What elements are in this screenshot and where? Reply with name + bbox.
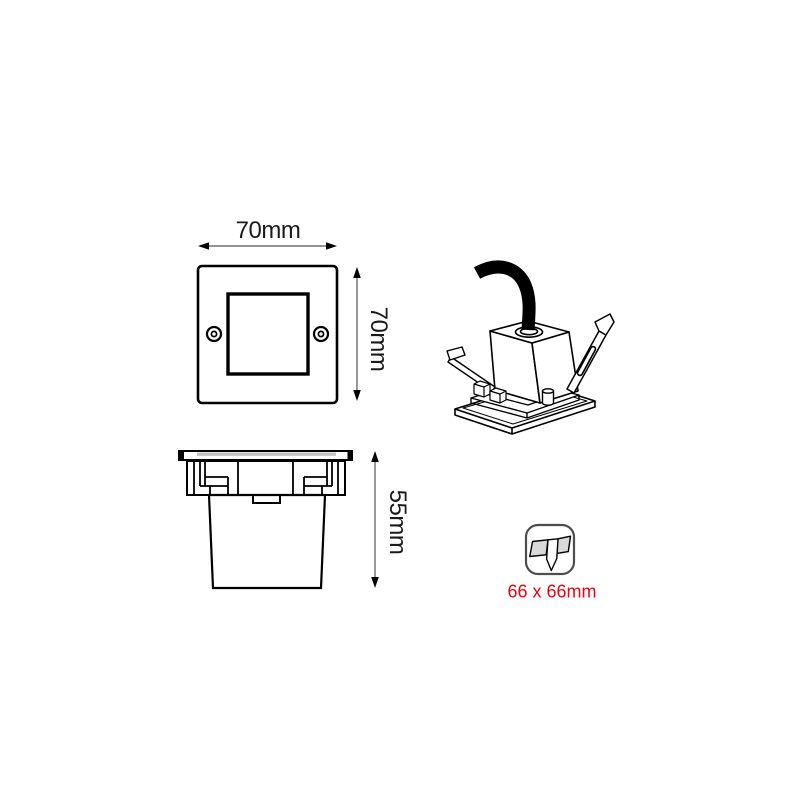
depth-dimension-arrow <box>371 451 379 588</box>
side-view-drawing <box>179 451 352 588</box>
front-knob <box>543 389 554 405</box>
lens-window <box>228 294 308 374</box>
cutout-hole-icon <box>526 525 574 574</box>
recessed-body <box>209 495 325 588</box>
height-dimension-arrow <box>353 267 361 401</box>
front-view-drawing <box>198 266 337 403</box>
line-art-layer <box>0 0 800 800</box>
cutout-surface-left <box>530 540 548 557</box>
power-cable <box>477 267 529 330</box>
spring-clip-right <box>567 314 614 393</box>
front-width-dimension-label: 70mm <box>236 217 301 245</box>
cutout-size-label: 66 x 66mm <box>507 582 596 603</box>
front-height-dimension-label: 70mm <box>364 307 392 372</box>
perspective-view-drawing <box>447 267 614 434</box>
faceplate-outline <box>198 266 337 403</box>
screw-left-icon <box>207 327 221 341</box>
screw-right-icon <box>314 327 328 341</box>
side-depth-dimension-label: 55mm <box>383 490 411 555</box>
technical-drawing-page: 70mm 70mm 55mm 66 x 66mm <box>0 0 800 800</box>
